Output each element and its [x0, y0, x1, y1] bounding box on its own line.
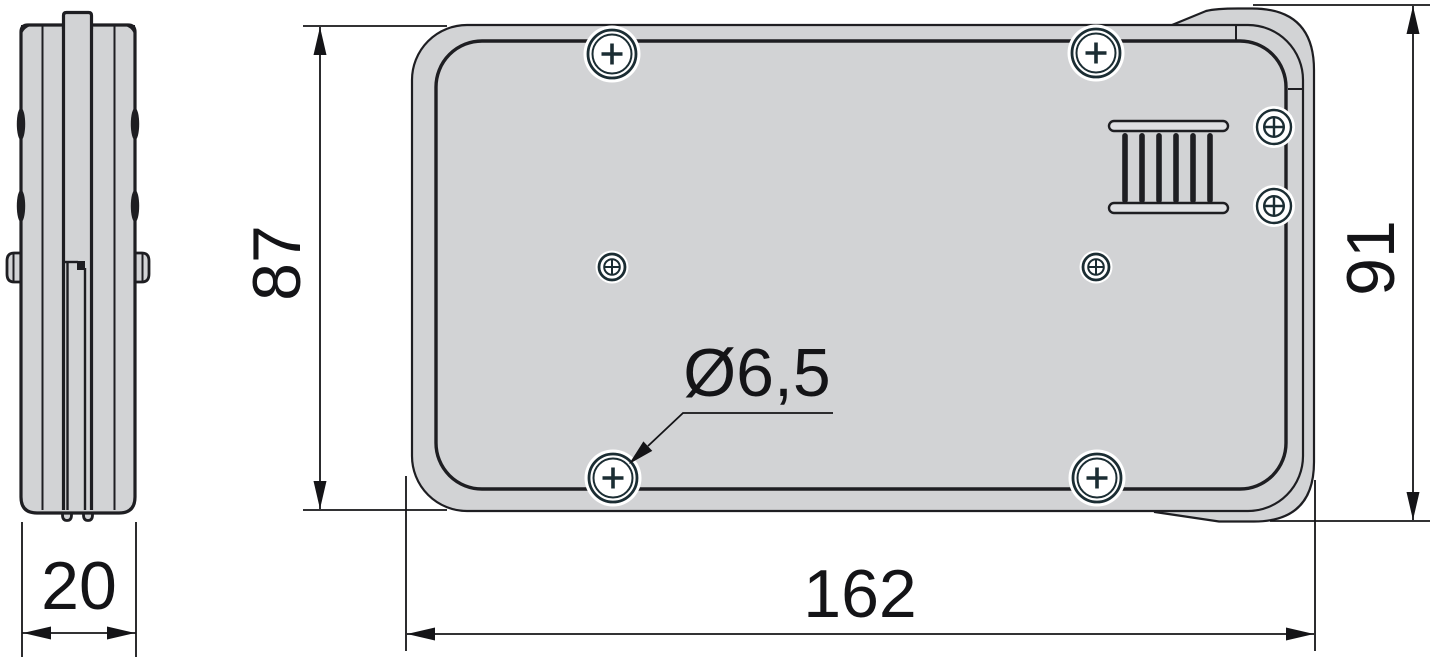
side-view — [7, 13, 149, 521]
vent-slat — [1156, 133, 1162, 203]
edge-screw-bottom — [1253, 185, 1295, 227]
vent-slat — [1173, 133, 1179, 203]
technical-drawing-canvas: 20 — [0, 0, 1445, 663]
corner-screw-top-right — [1068, 25, 1125, 82]
vent-slat — [1207, 133, 1213, 203]
edge-screw-top — [1253, 106, 1295, 148]
arrowhead-right — [107, 627, 135, 640]
vent-grille-bottom-bar — [1109, 203, 1228, 213]
rear-view — [412, 9, 1314, 522]
dimension-label-87: 87 — [239, 225, 315, 301]
back-plate-face — [436, 41, 1286, 489]
arrowhead-up — [1407, 6, 1420, 34]
arrowhead-down — [314, 481, 327, 509]
dimension-side-width: 20 — [22, 522, 136, 657]
dimension-label-91: 91 — [1333, 220, 1409, 296]
vent-grille-top-bar — [1109, 121, 1228, 131]
dimension-label-162: 162 — [803, 556, 916, 632]
dimension-label-hole: Ø6,5 — [683, 335, 830, 411]
dimension-label-20: 20 — [41, 548, 117, 624]
arrowhead-left — [407, 628, 435, 641]
center-screw-right — [1080, 251, 1113, 284]
arrowhead-left — [23, 627, 51, 640]
vent-slat — [1190, 133, 1196, 203]
arrowhead-down — [1407, 492, 1420, 520]
vent-slat — [1122, 133, 1128, 203]
arrowhead-right — [1286, 628, 1314, 641]
corner-screw-bottom-right — [1069, 450, 1126, 507]
side-view-top-tab — [64, 13, 92, 30]
corner-screw-top-left — [584, 26, 641, 83]
center-screw-left — [596, 251, 629, 284]
drawing-svg: 20 — [0, 0, 1445, 663]
vent-slat — [1139, 133, 1145, 203]
arrowhead-up — [314, 27, 327, 55]
